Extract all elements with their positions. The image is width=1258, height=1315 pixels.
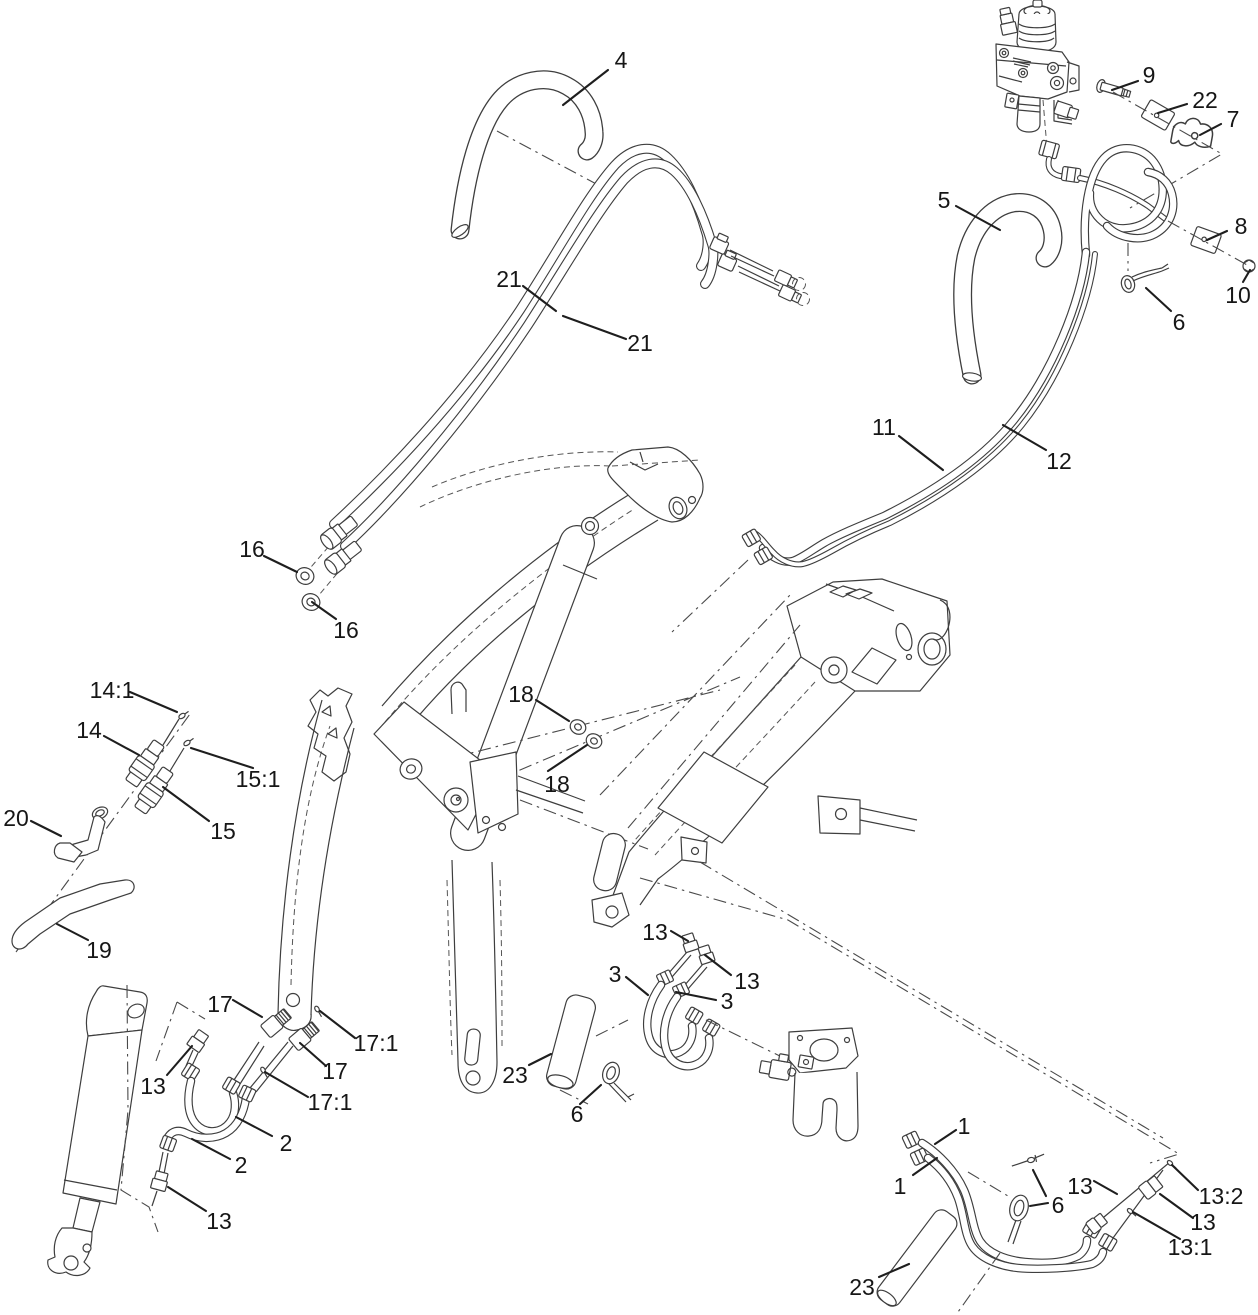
svg-text:13: 13: [1067, 1173, 1093, 1199]
svg-text:17: 17: [207, 991, 233, 1017]
svg-text:17:1: 17:1: [308, 1089, 353, 1115]
svg-text:3: 3: [721, 988, 734, 1014]
svg-text:23: 23: [849, 1274, 875, 1300]
svg-text:15:1: 15:1: [236, 766, 281, 792]
svg-text:11: 11: [872, 414, 896, 440]
svg-text:1: 1: [894, 1173, 907, 1199]
svg-text:13: 13: [1190, 1209, 1216, 1235]
svg-text:17: 17: [322, 1058, 348, 1084]
svg-text:13:1: 13:1: [1168, 1234, 1213, 1260]
svg-text:12: 12: [1046, 448, 1072, 474]
svg-text:13: 13: [734, 968, 760, 994]
svg-text:13: 13: [642, 919, 668, 945]
svg-text:10: 10: [1225, 282, 1251, 308]
svg-text:20: 20: [3, 805, 29, 831]
svg-text:9: 9: [1143, 62, 1156, 88]
svg-text:19: 19: [86, 937, 112, 963]
svg-text:16: 16: [333, 617, 359, 643]
svg-text:21: 21: [627, 330, 653, 356]
svg-text:6: 6: [571, 1101, 584, 1127]
svg-text:13: 13: [140, 1073, 166, 1099]
svg-text:22: 22: [1192, 87, 1218, 113]
svg-text:5: 5: [938, 187, 951, 213]
svg-text:8: 8: [1235, 213, 1248, 239]
svg-text:23: 23: [502, 1062, 528, 1088]
svg-text:13:2: 13:2: [1199, 1183, 1244, 1209]
svg-text:18: 18: [544, 771, 570, 797]
svg-text:14:1: 14:1: [90, 677, 135, 703]
svg-text:1: 1: [958, 1113, 971, 1139]
svg-text:6: 6: [1052, 1192, 1065, 1218]
svg-text:18: 18: [508, 681, 534, 707]
svg-text:3: 3: [609, 961, 622, 987]
svg-text:13: 13: [206, 1208, 232, 1234]
svg-text:21: 21: [496, 266, 522, 292]
svg-text:7: 7: [1227, 106, 1240, 132]
svg-text:14: 14: [76, 717, 102, 743]
svg-text:15: 15: [210, 818, 236, 844]
svg-text:16: 16: [239, 536, 265, 562]
svg-text:2: 2: [235, 1152, 248, 1178]
svg-text:6: 6: [1173, 309, 1186, 335]
svg-text:4: 4: [615, 47, 628, 73]
svg-text:2: 2: [280, 1130, 293, 1156]
svg-text:17:1: 17:1: [354, 1030, 399, 1056]
